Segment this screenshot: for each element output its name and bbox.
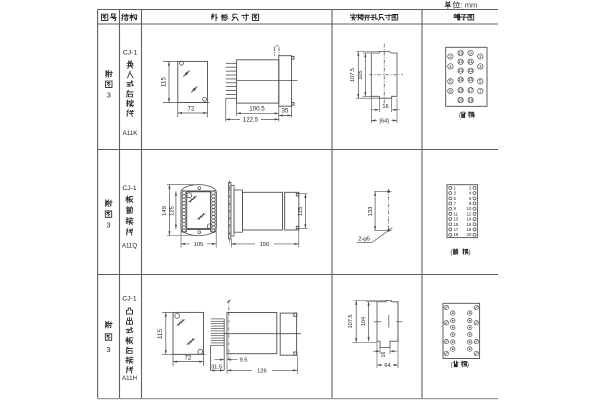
- svg-text:115: 115: [160, 77, 167, 87]
- svg-text:125: 125: [170, 206, 176, 216]
- svg-text:64: 64: [384, 363, 390, 369]
- svg-text:156: 156: [260, 242, 270, 248]
- svg-text:133: 133: [368, 207, 374, 217]
- svg-text:11: 11: [468, 59, 473, 64]
- svg-text:122.5: 122.5: [243, 117, 259, 124]
- svg-text:3: 3: [106, 345, 110, 354]
- svg-text:104: 104: [361, 317, 367, 326]
- svg-text:A11H: A11H: [122, 375, 137, 382]
- svg-text:20: 20: [458, 98, 463, 103]
- svg-text:CJ-1: CJ-1: [122, 185, 137, 192]
- svg-text:13: 13: [468, 68, 473, 73]
- svg-text:20: 20: [467, 232, 472, 237]
- svg-text:115: 115: [157, 329, 164, 339]
- svg-text::: :: [461, 3, 463, 10]
- svg-text:12: 12: [458, 59, 463, 64]
- svg-text:105: 105: [358, 70, 364, 79]
- svg-text:149: 149: [162, 206, 168, 216]
- svg-text:10: 10: [458, 50, 463, 55]
- svg-text:A11K: A11K: [123, 130, 139, 137]
- svg-text:): ): [469, 249, 471, 256]
- svg-text:72: 72: [184, 354, 191, 361]
- svg-text:mm: mm: [465, 1, 478, 10]
- svg-text:17: 17: [468, 88, 473, 93]
- svg-text:14: 14: [458, 68, 463, 73]
- svg-text:9.5: 9.5: [239, 358, 247, 364]
- svg-text:2-φ5: 2-φ5: [358, 237, 369, 243]
- svg-text:115: 115: [298, 207, 304, 216]
- svg-text:15: 15: [468, 77, 473, 82]
- svg-text:): ): [473, 112, 475, 119]
- svg-text:3: 3: [106, 221, 110, 230]
- svg-text:A11Q: A11Q: [122, 243, 138, 250]
- svg-text:126: 126: [257, 369, 267, 375]
- svg-text:16: 16: [381, 352, 387, 358]
- svg-text:31.5: 31.5: [211, 364, 222, 370]
- svg-text:): ): [467, 361, 469, 368]
- svg-text:105: 105: [194, 242, 204, 248]
- svg-text:19: 19: [454, 232, 459, 237]
- svg-text:107.5: 107.5: [348, 315, 354, 329]
- svg-text:100.5: 100.5: [249, 105, 265, 112]
- svg-text:[64]: [64]: [380, 119, 390, 125]
- svg-text:72: 72: [188, 106, 195, 113]
- svg-text:16: 16: [458, 77, 463, 82]
- svg-text:19: 19: [468, 98, 473, 103]
- svg-text:CJ-1: CJ-1: [122, 296, 137, 303]
- svg-text:16: 16: [382, 104, 388, 110]
- svg-text:3: 3: [107, 90, 111, 99]
- svg-text:CJ-1: CJ-1: [123, 49, 138, 56]
- svg-text:107.5: 107.5: [350, 68, 356, 82]
- svg-text:35: 35: [282, 108, 289, 115]
- svg-text:18: 18: [458, 88, 463, 93]
